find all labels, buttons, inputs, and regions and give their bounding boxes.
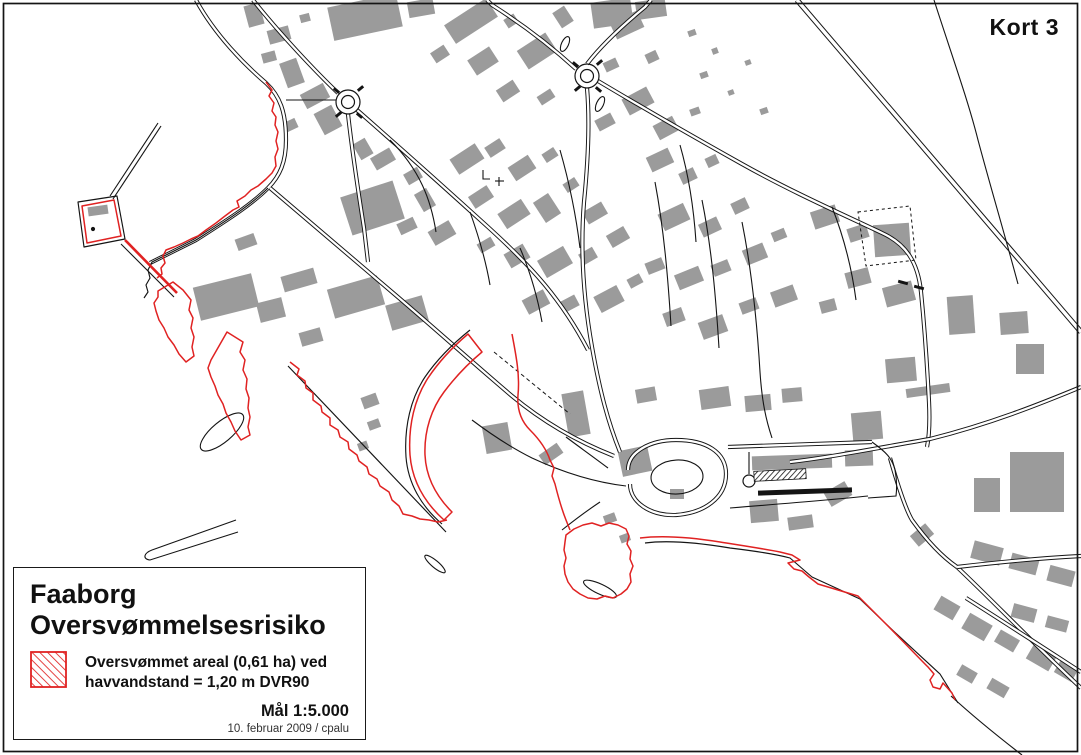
road-fill — [790, 387, 1081, 462]
building — [484, 138, 506, 158]
map-credit: 10. februar 2009 / cpalu — [30, 723, 351, 735]
building — [699, 386, 731, 410]
building — [999, 311, 1028, 335]
building — [606, 226, 630, 248]
building — [508, 155, 537, 181]
harbor-ellipse — [593, 95, 606, 112]
building — [327, 275, 385, 318]
building — [300, 83, 330, 109]
building — [744, 394, 771, 412]
building — [851, 411, 883, 442]
building — [698, 314, 729, 340]
building — [193, 273, 259, 321]
building — [541, 147, 558, 163]
road-casing — [150, 0, 286, 263]
building — [819, 298, 838, 314]
building — [644, 50, 659, 64]
building — [885, 357, 917, 384]
building — [710, 259, 731, 277]
building — [280, 268, 317, 293]
building — [933, 596, 960, 621]
tick-bar — [574, 85, 581, 92]
building — [537, 88, 556, 105]
building — [687, 29, 697, 37]
building — [87, 205, 108, 217]
building — [711, 47, 719, 55]
street-line — [110, 123, 158, 196]
building — [1045, 615, 1069, 632]
building — [749, 499, 779, 523]
building — [689, 107, 701, 117]
tick-bar — [595, 86, 602, 93]
building — [428, 220, 457, 246]
building — [742, 242, 768, 265]
building — [994, 629, 1020, 652]
building — [844, 267, 871, 289]
building — [467, 46, 499, 75]
street-line — [483, 170, 490, 179]
harbor-ellipse — [558, 35, 571, 52]
building — [1016, 344, 1044, 374]
flood-hatch-rect — [31, 652, 66, 687]
building — [1011, 603, 1038, 623]
building — [947, 295, 976, 335]
building — [279, 58, 305, 89]
legend-item-label: Oversvømmet areal (0,61 ha) ved havvands… — [85, 651, 327, 693]
building — [738, 297, 759, 314]
roundabout-icon — [336, 90, 360, 114]
building — [261, 50, 277, 63]
legend-item-line1: Oversvømmet areal (0,61 ha) ved — [85, 653, 327, 673]
building — [370, 147, 396, 170]
building — [537, 246, 573, 278]
road-circle — [342, 96, 355, 109]
legend-title: Faaborg Oversvømmelsesrisiko — [30, 579, 351, 642]
flood-outline — [640, 537, 955, 700]
building — [1010, 452, 1064, 512]
building — [771, 228, 788, 243]
building — [662, 307, 686, 327]
building — [644, 257, 665, 275]
building — [450, 143, 485, 174]
flood-outline — [154, 282, 194, 362]
building — [298, 327, 323, 347]
building — [646, 148, 675, 173]
tick-bar — [357, 85, 364, 92]
street-line — [145, 520, 238, 560]
building — [956, 664, 978, 683]
road-circle — [743, 475, 755, 487]
road-circle — [581, 70, 594, 83]
legend-item-row: Oversvømmet areal (0,61 ha) ved havvands… — [30, 651, 351, 693]
building — [444, 0, 498, 44]
building — [562, 177, 579, 193]
building — [594, 112, 616, 131]
flood-outline — [564, 523, 633, 599]
roundabout-icon — [575, 64, 599, 88]
map-page: Kort 3 Faaborg Oversvømmelsesrisiko Over… — [0, 0, 1081, 755]
building — [299, 13, 311, 23]
building — [468, 185, 494, 209]
building — [974, 478, 1000, 512]
building — [770, 284, 798, 307]
harbor-ellipse — [423, 553, 447, 575]
legend-title-line1: Faaborg — [30, 579, 351, 610]
building — [618, 445, 653, 477]
road-circle — [92, 228, 95, 231]
building — [367, 418, 381, 431]
flood-outline — [410, 334, 482, 520]
building — [430, 45, 450, 64]
building — [340, 180, 405, 235]
building — [385, 295, 429, 330]
building — [824, 481, 853, 507]
building — [744, 59, 751, 66]
coastline — [288, 366, 446, 532]
building — [1008, 553, 1039, 576]
building — [787, 514, 814, 530]
building — [235, 233, 258, 251]
harbor-ellipse — [195, 407, 249, 457]
building — [533, 193, 561, 223]
street-line — [560, 150, 580, 248]
map-sheet-title: Kort 3 — [990, 14, 1059, 41]
building — [603, 58, 620, 73]
legend-box: Faaborg Oversvømmelsesrisiko Oversvømmet… — [13, 567, 366, 740]
street-line — [680, 145, 696, 242]
road-casing — [890, 458, 957, 567]
road-fill — [348, 114, 368, 262]
building — [352, 138, 373, 161]
building — [256, 297, 286, 323]
building — [360, 393, 379, 410]
coastline — [951, 696, 1022, 755]
building — [759, 107, 769, 115]
building — [626, 273, 643, 288]
flood-outline — [208, 332, 250, 440]
building — [552, 6, 574, 29]
platform-hatch — [754, 469, 806, 482]
building — [781, 387, 802, 403]
detail-layer — [333, 59, 924, 496]
flood-hatch-swatch — [30, 651, 67, 688]
building — [496, 80, 520, 103]
tick-bar — [596, 59, 603, 66]
building — [961, 613, 993, 642]
building — [730, 197, 750, 215]
legend-title-line2: Oversvømmelsesrisiko — [30, 610, 351, 641]
building — [704, 154, 719, 168]
building — [327, 0, 403, 41]
dashed-line — [494, 352, 570, 414]
building — [403, 167, 423, 185]
road-casing — [790, 387, 1081, 462]
building — [727, 89, 734, 96]
building — [674, 266, 704, 291]
building — [243, 2, 264, 27]
building — [1046, 565, 1075, 587]
building — [561, 390, 590, 437]
building — [882, 280, 916, 307]
building — [986, 678, 1009, 698]
street-line — [113, 126, 161, 199]
street-line — [655, 182, 671, 326]
map-scale: Mål 1:5.000 — [30, 702, 351, 721]
road-fill — [797, 0, 1081, 332]
building — [497, 199, 530, 229]
building — [698, 216, 722, 237]
coastline — [645, 542, 958, 703]
legend-item-line2: havvandstand = 1,20 m DVR90 — [85, 673, 327, 693]
building — [635, 386, 657, 403]
building — [593, 285, 624, 313]
building — [699, 71, 709, 79]
road-fill — [890, 458, 957, 567]
